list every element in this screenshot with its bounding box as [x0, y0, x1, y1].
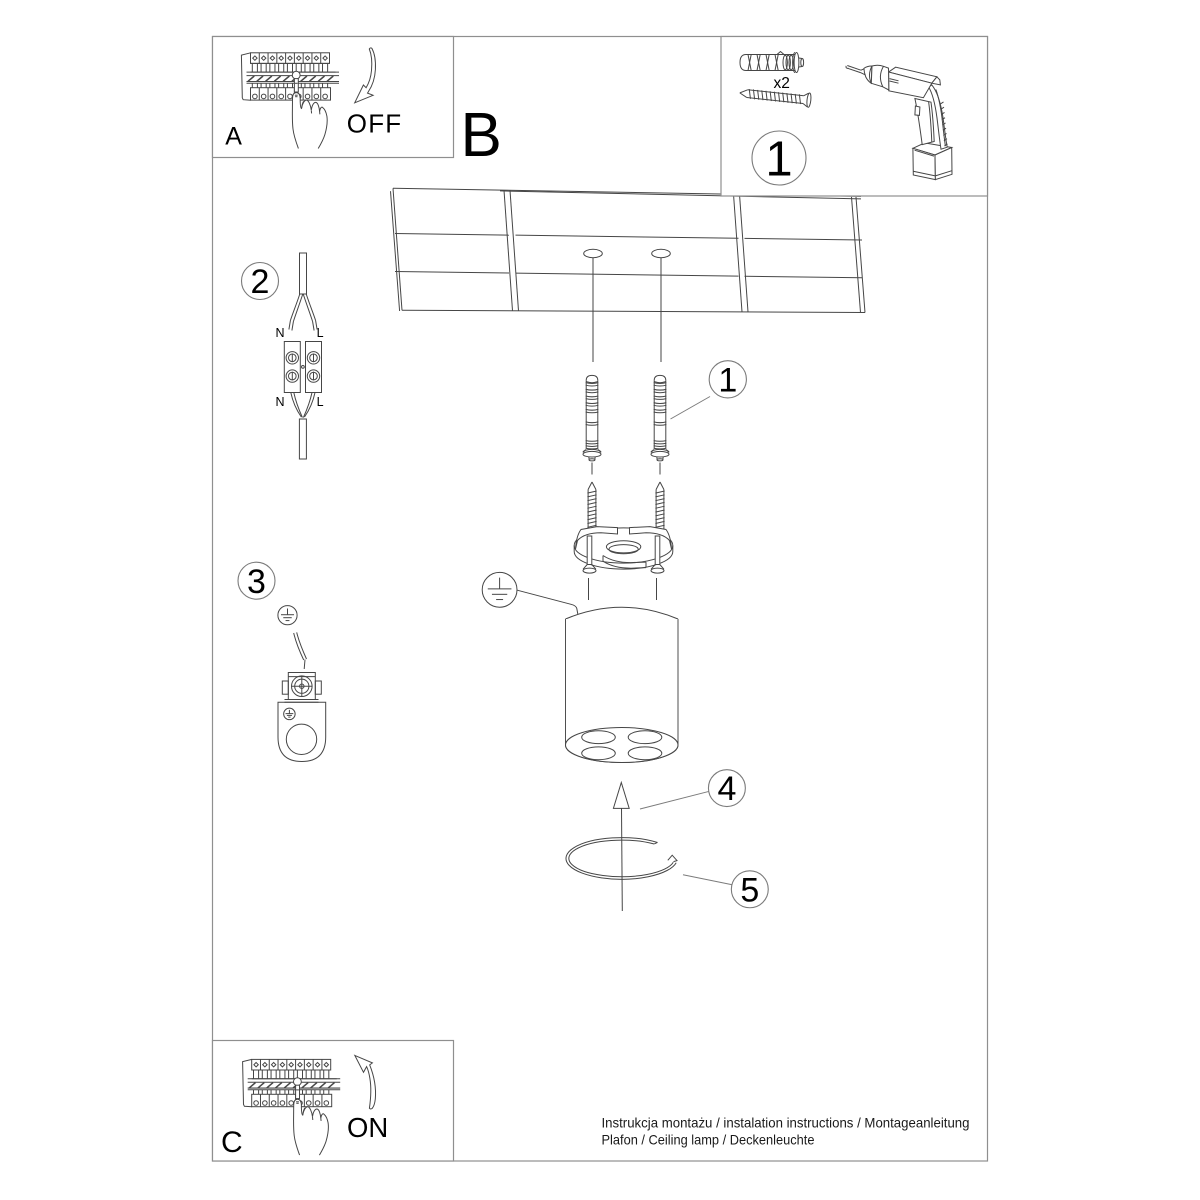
svg-text:B: B [461, 101, 502, 170]
svg-text:2: 2 [251, 263, 270, 301]
svg-text:Plafon / Ceiling lamp / Decken: Plafon / Ceiling lamp / Deckenleuchte [602, 1131, 815, 1147]
svg-text:1: 1 [765, 132, 792, 186]
svg-text:1: 1 [718, 361, 737, 399]
svg-text:N: N [276, 326, 285, 340]
svg-text:4: 4 [717, 770, 736, 808]
svg-text:3: 3 [247, 563, 266, 601]
svg-text:N: N [276, 395, 285, 409]
svg-text:5: 5 [740, 871, 759, 909]
svg-text:A: A [225, 123, 242, 151]
svg-text:OFF: OFF [347, 109, 403, 139]
svg-text:ON: ON [347, 1112, 388, 1143]
svg-text:Instrukcja montażu / instalati: Instrukcja montażu / instalation instruc… [602, 1115, 970, 1131]
svg-text:L: L [317, 326, 324, 340]
svg-text:x2: x2 [774, 75, 790, 92]
svg-text:C: C [221, 1126, 243, 1159]
svg-text:L: L [317, 395, 324, 409]
